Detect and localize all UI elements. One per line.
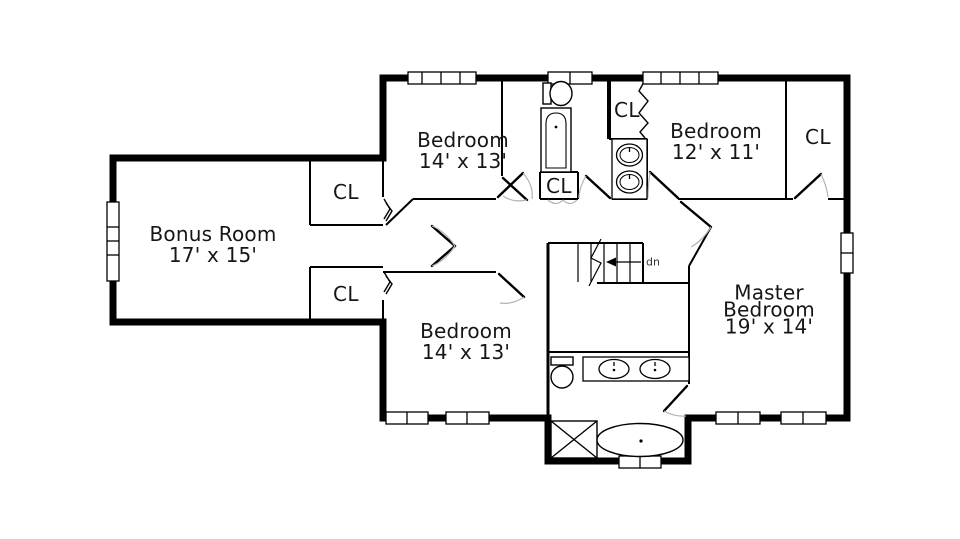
room-dimensions: 12' x 11' [670, 142, 762, 163]
closet-label-bath-linen: CL [546, 176, 572, 196]
room-name: Bedroom [420, 321, 512, 342]
room-dimensions: 17' x 15' [149, 245, 276, 266]
room-name: Bonus Room [149, 224, 276, 245]
shower-icon [551, 421, 597, 458]
room-label-bedroom-top: Bedroom 14' x 13' [417, 130, 509, 172]
room-label-master-bedroom: Master Bedroom 19' x 14' [723, 285, 815, 336]
room-label-bedroom-right: Bedroom 12' x 11' [670, 121, 762, 163]
toilet-icon [543, 82, 572, 106]
room-dimensions: 19' x 14' [723, 319, 815, 336]
room-dimensions: 14' x 13' [417, 151, 509, 172]
staircase-icon [578, 239, 641, 286]
floor-plan-page: Bonus Room 17' x 15' Bedroom 14' x 13' B… [0, 0, 960, 539]
bathtub-icon [541, 108, 571, 172]
room-label-bonus-room: Bonus Room 17' x 15' [149, 224, 276, 266]
closet-label-bonus-lower: CL [333, 284, 359, 304]
master-toilet-icon [551, 357, 573, 388]
garden-tub-icon [597, 424, 683, 457]
room-label-bedroom-bottom: Bedroom 14' x 13' [420, 321, 512, 363]
vanity-double-sink-icon [612, 139, 647, 199]
floor-plan-drawing [0, 0, 960, 539]
closet-label-far-right: CL [805, 127, 831, 147]
room-dimensions: 14' x 13' [420, 342, 512, 363]
room-name: Bedroom [417, 130, 509, 151]
room-name: Bedroom [670, 121, 762, 142]
closet-label-bedroom-right: CL [614, 100, 640, 120]
closet-label-bonus-upper: CL [333, 182, 359, 202]
stairs-down-label: dn [646, 257, 660, 268]
master-vanity-double-sink-icon [583, 357, 689, 381]
